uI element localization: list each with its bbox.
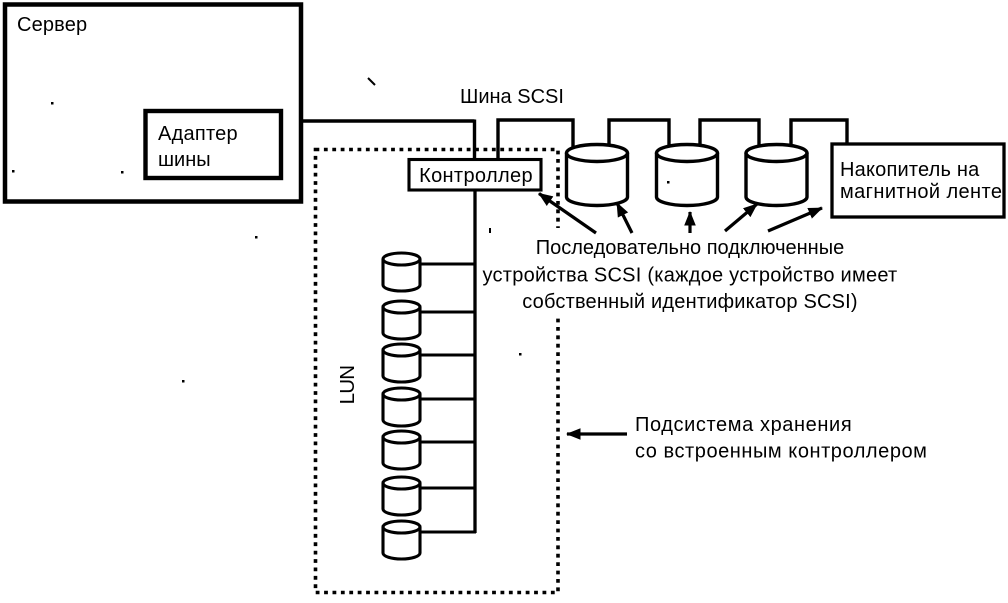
svg-text:устройства SCSI (каждое устрой: устройства SCSI (каждое устройство имеет (483, 265, 898, 287)
svg-text:шины: шины (158, 149, 211, 171)
svg-text:Сервер: Сервер (17, 14, 87, 36)
svg-text:магнитной ленте: магнитной ленте (840, 181, 1002, 203)
svg-text:LUN: LUN (336, 366, 359, 405)
svg-text:собственный идентификатор SCSI: собственный идентификатор SCSI) (522, 291, 858, 313)
svg-text:Накопитель на: Накопитель на (840, 159, 980, 181)
svg-text:Адаптер: Адаптер (158, 123, 238, 145)
svg-text:Шина SCSI: Шина SCSI (460, 86, 564, 108)
svg-text:Контроллер: Контроллер (419, 165, 533, 187)
svg-text:Последовательно подключенные: Последовательно подключенные (536, 237, 844, 259)
svg-text:Подсистема хранения: Подсистема хранения (635, 414, 852, 436)
svg-text:со встроенным контроллером: со встроенным контроллером (635, 441, 927, 463)
